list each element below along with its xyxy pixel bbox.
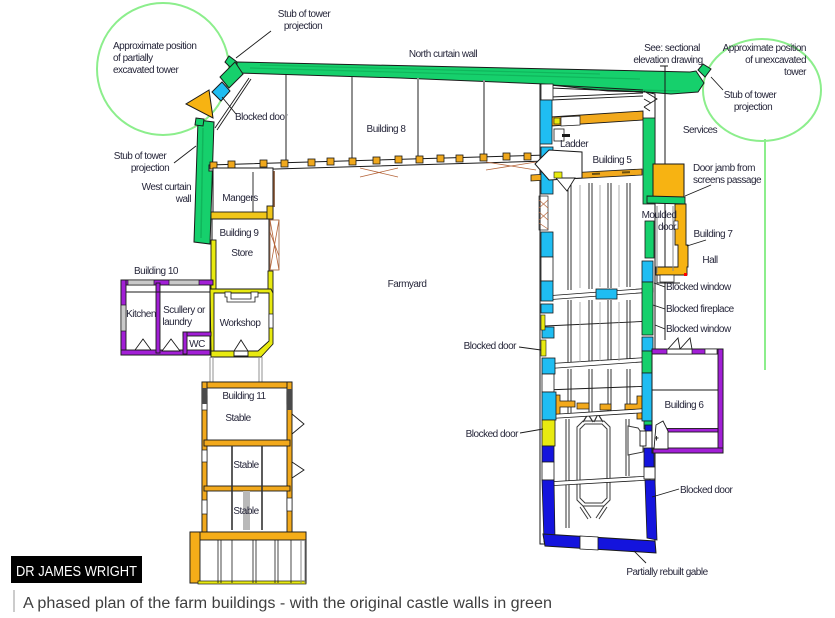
svg-text:Blocked door: Blocked door (464, 341, 518, 352)
svg-text:of partially: of partially (113, 53, 153, 64)
svg-text:Workshop: Workshop (220, 318, 262, 329)
svg-text:Partially rebuilt gable: Partially rebuilt gable (626, 567, 708, 578)
svg-text:WC: WC (189, 339, 205, 350)
svg-text:door: door (658, 222, 677, 233)
svg-text:Stable: Stable (233, 506, 259, 517)
svg-text:Stub of tower: Stub of tower (724, 90, 778, 101)
svg-text:Building 7: Building 7 (694, 229, 734, 240)
svg-text:Farmyard: Farmyard (388, 279, 427, 290)
svg-text:projection: projection (131, 163, 169, 174)
svg-text:Door jamb from: Door jamb from (693, 163, 755, 174)
svg-text:laundry: laundry (162, 317, 192, 328)
svg-text:Stub of tower: Stub of tower (114, 151, 168, 162)
svg-text:excavated tower: excavated tower (113, 65, 179, 76)
svg-text:projection: projection (734, 102, 772, 113)
svg-text:Stub of tower: Stub of tower (278, 9, 332, 20)
svg-text:Stable: Stable (225, 413, 251, 424)
svg-text:elevation drawing: elevation drawing (633, 55, 702, 66)
svg-text:Building 9: Building 9 (220, 228, 260, 239)
svg-text:Blocked fireplace: Blocked fireplace (666, 304, 735, 315)
svg-text:Building 8: Building 8 (367, 124, 407, 135)
svg-text:Building 5: Building 5 (593, 155, 633, 166)
svg-text:Blocked door: Blocked door (680, 485, 734, 496)
svg-text:Blocked door: Blocked door (235, 112, 289, 123)
svg-text:tower: tower (784, 67, 807, 78)
svg-text:wall: wall (175, 194, 192, 205)
svg-text:Approximate position: Approximate position (113, 41, 196, 52)
svg-text:Ladder: Ladder (560, 139, 589, 150)
svg-text:Moulded: Moulded (642, 210, 677, 221)
svg-text:Blocked window: Blocked window (666, 324, 732, 335)
svg-text:West curtain: West curtain (142, 182, 191, 193)
svg-text:of unexcavated: of unexcavated (745, 55, 806, 66)
svg-text:Kitchen: Kitchen (126, 309, 156, 320)
svg-text:Store: Store (231, 248, 253, 259)
svg-text:Mangers: Mangers (222, 193, 258, 204)
svg-text:screens passage: screens passage (693, 175, 762, 186)
svg-text:Hall: Hall (702, 255, 718, 266)
svg-text:Building 10: Building 10 (134, 266, 179, 277)
svg-text:Blocked window: Blocked window (666, 282, 732, 293)
svg-text:Building 11: Building 11 (222, 391, 266, 402)
svg-text:Approximate position: Approximate position (723, 43, 806, 54)
svg-text:Blocked door: Blocked door (466, 429, 520, 440)
svg-text:See: sectional: See: sectional (644, 43, 700, 54)
svg-text:North curtain wall: North curtain wall (409, 49, 478, 60)
svg-text:Scullery or: Scullery or (163, 305, 206, 316)
svg-text:Services: Services (683, 125, 718, 136)
svg-text:A phased plan of the farm buil: A phased plan of the farm buildings - wi… (23, 595, 552, 612)
svg-text:projection: projection (284, 21, 322, 32)
svg-text:Building 6: Building 6 (665, 400, 705, 411)
svg-text:DR JAMES WRIGHT: DR JAMES WRIGHT (16, 563, 137, 580)
svg-text:Stable: Stable (233, 460, 259, 471)
